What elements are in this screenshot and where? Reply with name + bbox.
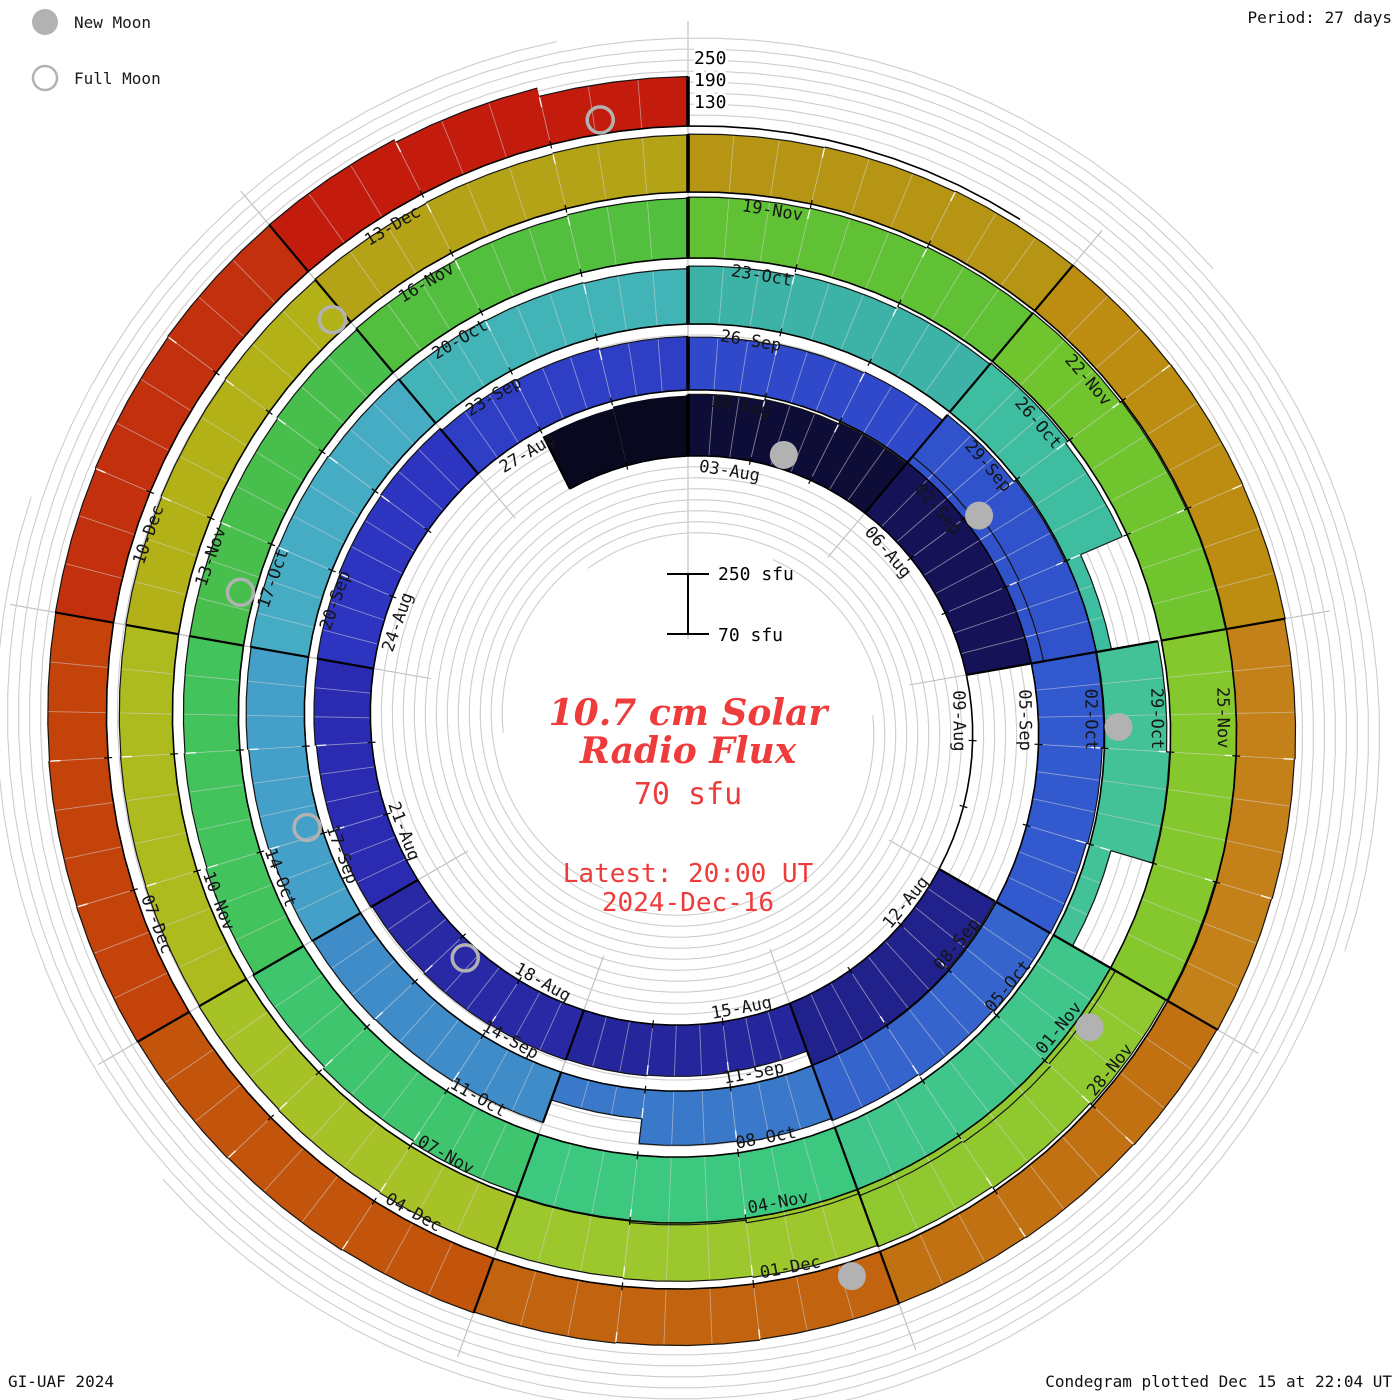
legend-full-moon-label: Full Moon (74, 69, 161, 88)
chart-title-line2: Radio Flux (549, 732, 828, 770)
date-label: 02-Oct (1080, 689, 1101, 751)
chart-title-line1: 10.7 cm Solar (549, 694, 828, 732)
date-label: 29-Oct (1146, 688, 1167, 750)
legend-full-moon: Full Moon (30, 63, 161, 93)
new-moon-marker (965, 502, 993, 530)
scale-bar-label: 70 sfu (718, 625, 783, 646)
date-label: 09-Aug (948, 690, 969, 752)
flux-scale-label: 250 (694, 48, 727, 69)
new-moon-marker (838, 1262, 866, 1290)
current-flux-value: 70 sfu (549, 778, 828, 812)
new-moon-marker (770, 441, 798, 469)
flux-scale-label: 130 (694, 92, 727, 113)
new-moon-marker (1076, 1013, 1104, 1041)
full-moon-icon (30, 63, 60, 93)
latest-time: Latest: 20:00 UT (563, 860, 813, 889)
scale-bar-label: 250 sfu (718, 564, 794, 585)
flux-scale-label: 190 (694, 70, 727, 91)
plotted-timestamp: Condegram plotted Dec 15 at 22:04 UT (1045, 1372, 1392, 1391)
legend-new-moon-label: New Moon (74, 13, 151, 32)
period-label: Period: 27 days (1248, 8, 1393, 27)
chart-title: 10.7 cm Solar Radio Flux 70 sfu (549, 694, 828, 812)
legend-new-moon: New Moon (30, 7, 151, 37)
credit-label: GI-UAF 2024 (8, 1372, 114, 1391)
date-label: 25-Nov (1212, 687, 1233, 749)
new-moon-marker (1105, 713, 1133, 741)
latest-annotation: Latest: 20:00 UT 2024-Dec-16 (563, 860, 813, 918)
radial-scale-labels: 250190130 (694, 48, 727, 113)
new-moon-icon (30, 7, 60, 37)
latest-date: 2024-Dec-16 (563, 889, 813, 918)
scale-bar: 250 sfu70 sfu (667, 564, 794, 646)
condegram-page: { "legend": { "new_moon_label": "New Moo… (0, 0, 1400, 1400)
date-label: 05-Sep (1014, 689, 1035, 751)
